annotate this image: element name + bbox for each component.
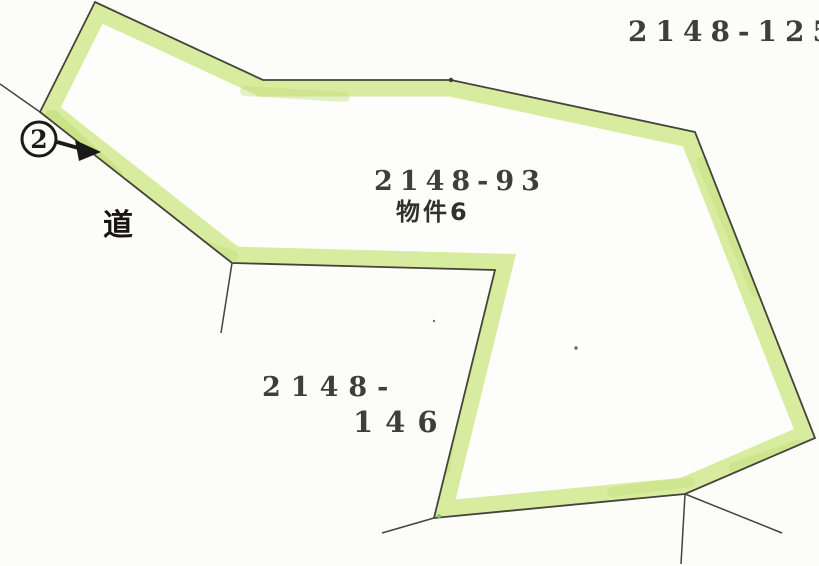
map-page: 2 2148-125 2148-93 物件6 2148- 146 道 — [0, 0, 819, 566]
green-speck — [437, 514, 441, 518]
parcel-label-2148-146-line1: 2148- — [262, 374, 398, 401]
marker-number: 2 — [30, 125, 47, 154]
extension-line-s — [681, 494, 685, 564]
parcel-map-drawing: 2 — [0, 0, 819, 566]
parcel-property-note: 物件6 — [396, 200, 470, 224]
extension-line-notch — [221, 263, 232, 333]
road-label: 道 — [103, 211, 133, 241]
road-edge-line — [0, 84, 40, 112]
parcel-label-2148-93: 2148-93 — [374, 168, 547, 195]
extension-line-se — [685, 494, 782, 533]
parcel-label-2148-125: 2148-125 — [628, 18, 819, 46]
vertex-tick — [449, 78, 453, 82]
parcel-label-2148-146-line2: 146 — [353, 408, 450, 437]
extension-line-sw — [382, 518, 434, 533]
